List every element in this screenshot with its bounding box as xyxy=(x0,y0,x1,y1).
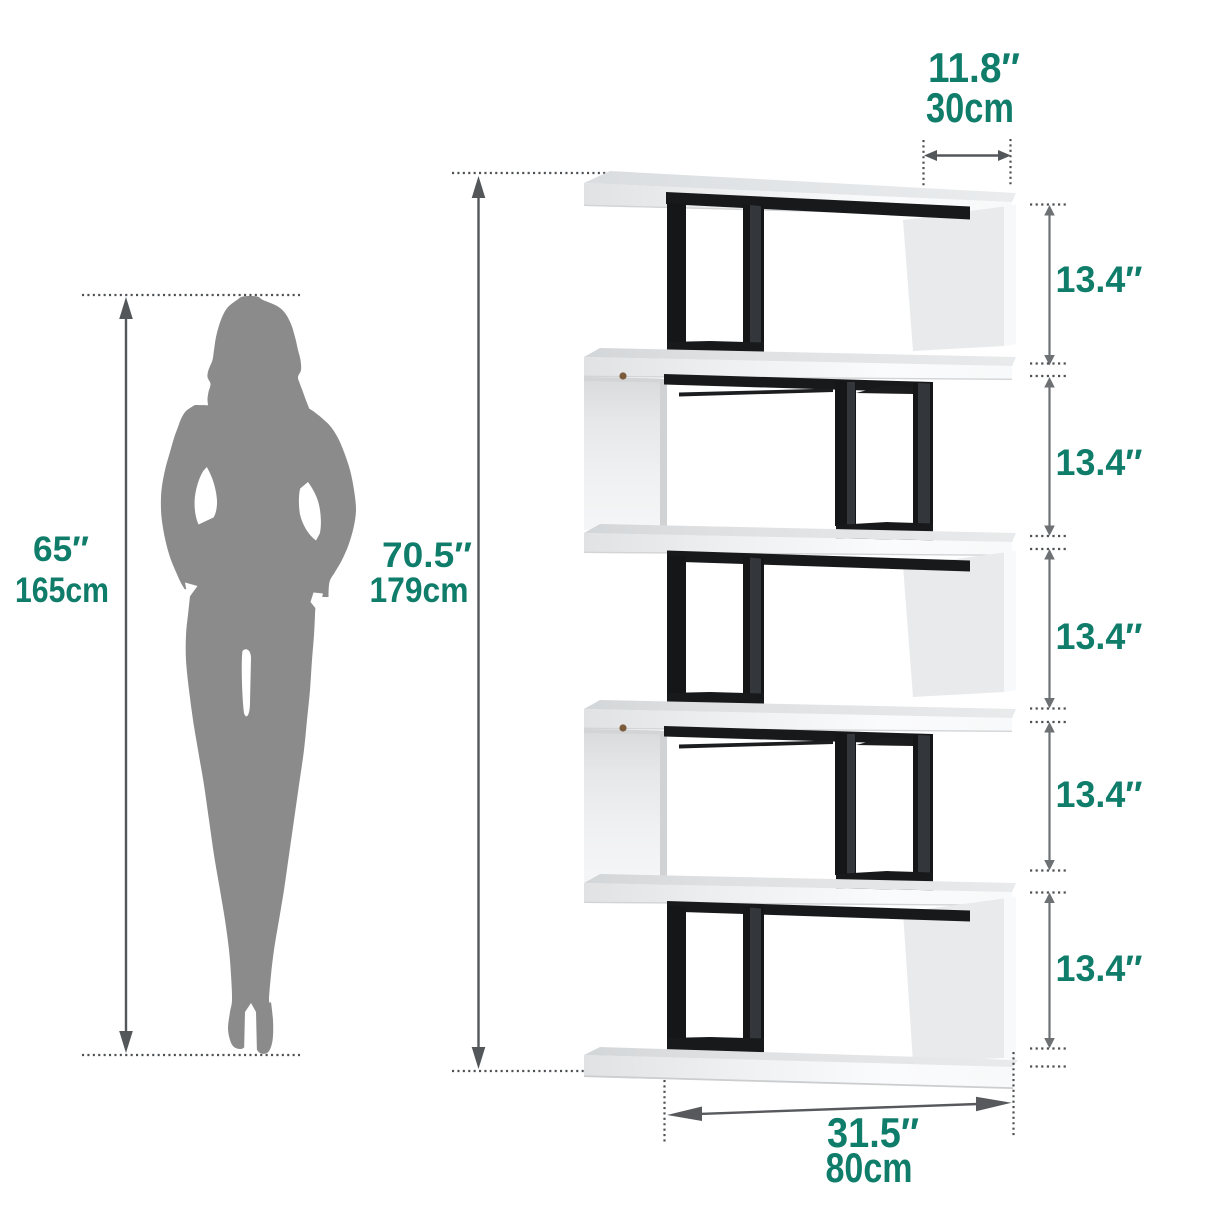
svg-text:30cm: 30cm xyxy=(926,84,1014,131)
svg-text:80cm: 80cm xyxy=(826,1144,913,1191)
svg-text:13.4″: 13.4″ xyxy=(1056,774,1143,815)
svg-text:70.5″: 70.5″ xyxy=(382,536,472,575)
svg-text:165cm: 165cm xyxy=(15,571,109,610)
svg-text:13.4″: 13.4″ xyxy=(1056,442,1143,483)
svg-text:13.4″: 13.4″ xyxy=(1056,259,1143,300)
svg-text:13.4″: 13.4″ xyxy=(1056,616,1143,657)
svg-text:13.4″: 13.4″ xyxy=(1056,948,1143,989)
svg-text:179cm: 179cm xyxy=(370,571,469,610)
svg-text:65″: 65″ xyxy=(33,530,89,569)
